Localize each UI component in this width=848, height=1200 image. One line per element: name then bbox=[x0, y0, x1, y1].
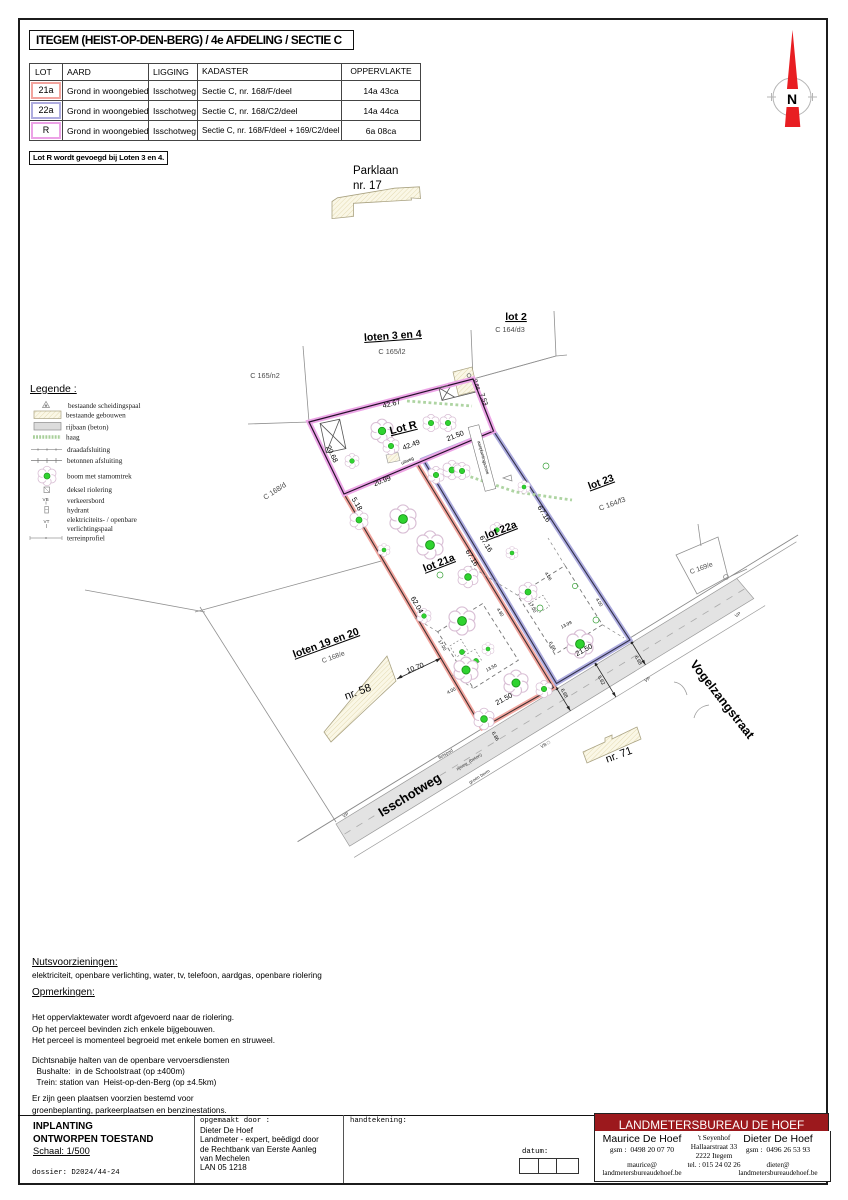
svg-text:loten 19 en 20: loten 19 en 20 bbox=[291, 626, 361, 661]
svg-text:boom met stamomtrek: boom met stamomtrek bbox=[67, 473, 132, 481]
svg-text:Vogelzangstraat: Vogelzangstraat bbox=[687, 658, 757, 743]
svg-text:10.70: 10.70 bbox=[405, 660, 425, 675]
svg-text:loten 3 en 4: loten 3 en 4 bbox=[364, 328, 423, 344]
svg-text:verkeersbord: verkeersbord bbox=[67, 497, 105, 505]
svg-text:C 169/e: C 169/e bbox=[689, 561, 714, 576]
svg-text:4.00: 4.00 bbox=[446, 686, 457, 695]
svg-text:haag: haag bbox=[66, 434, 80, 442]
svg-text:VB □: VB □ bbox=[540, 740, 551, 750]
svg-text:bestaande scheidingspaal: bestaande scheidingspaal bbox=[68, 402, 140, 410]
svg-text:elektriciteits- / openbare: elektriciteits- / openbare bbox=[67, 516, 137, 524]
svg-text:lot 23: lot 23 bbox=[587, 473, 616, 493]
svg-text:C 168/d: C 168/d bbox=[261, 480, 287, 501]
svg-text:draadafsluiting: draadafsluiting bbox=[67, 446, 111, 454]
svg-text:VB: VB bbox=[43, 497, 49, 502]
svg-text:verlichtingspaal: verlichtingspaal bbox=[67, 525, 113, 533]
svg-text:lot 2: lot 2 bbox=[505, 311, 527, 323]
svg-text:C 165/l2: C 165/l2 bbox=[378, 347, 405, 356]
svg-text:C 164/d3: C 164/d3 bbox=[495, 325, 525, 334]
svg-text:VP: VP bbox=[643, 676, 651, 683]
svg-text:VT: VT bbox=[44, 519, 50, 524]
svg-text:N: N bbox=[787, 91, 797, 107]
svg-text:nr. 17: nr. 17 bbox=[353, 180, 382, 192]
svg-text:Parklaan: Parklaan bbox=[353, 165, 398, 177]
svg-text:C 165/n2: C 165/n2 bbox=[250, 371, 280, 380]
svg-text:rijbaan (beton): rijbaan (beton) bbox=[66, 424, 109, 432]
svg-text:betonnen afsluiting: betonnen afsluiting bbox=[67, 457, 123, 465]
svg-text:hydrant: hydrant bbox=[67, 507, 89, 515]
svg-text:deksel riolering: deksel riolering bbox=[67, 486, 112, 494]
svg-text:bestaande gebouwen: bestaande gebouwen bbox=[66, 412, 126, 420]
svg-text:C 168/e: C 168/e bbox=[321, 650, 346, 665]
svg-text:terreinprofiel: terreinprofiel bbox=[67, 535, 105, 543]
svg-text:VP: VP bbox=[734, 611, 742, 618]
svg-text:C 164/f3: C 164/f3 bbox=[598, 495, 627, 513]
